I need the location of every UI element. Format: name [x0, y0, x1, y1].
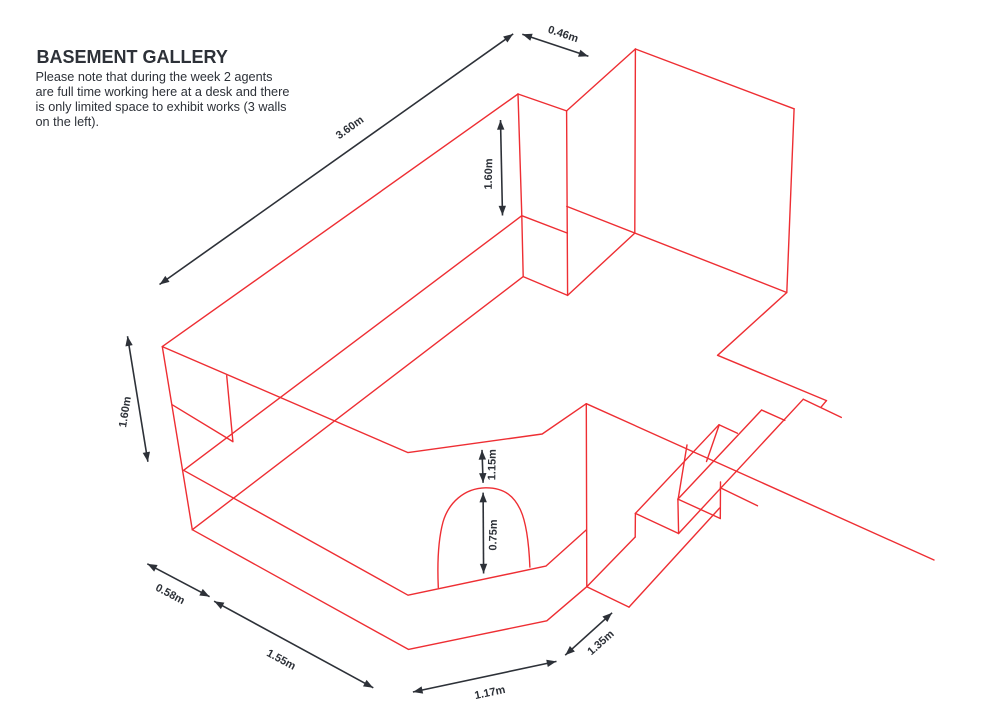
svg-text:0.46m: 0.46m [546, 24, 580, 45]
svg-text:3.60m: 3.60m [334, 114, 367, 142]
svg-text:on the left).: on the left). [36, 115, 99, 129]
svg-text:Please note that during the we: Please note that during the week 2 agent… [36, 70, 273, 84]
svg-text:are full time working here at: are full time working here at a desk and… [36, 85, 290, 99]
svg-text:0.75m: 0.75m [487, 519, 500, 551]
svg-text:1.60m: 1.60m [117, 395, 134, 428]
svg-text:BASEMENT GALLERY: BASEMENT GALLERY [37, 47, 228, 67]
svg-text:1.60m: 1.60m [483, 158, 496, 190]
svg-text:1.55m: 1.55m [264, 647, 297, 673]
svg-text:1.17m: 1.17m [473, 684, 506, 702]
svg-text:is only limited space to exhib: is only limited space to exhibit works (… [36, 100, 287, 114]
svg-text:0.58m: 0.58m [153, 582, 186, 607]
svg-text:1.15m: 1.15m [486, 449, 499, 481]
